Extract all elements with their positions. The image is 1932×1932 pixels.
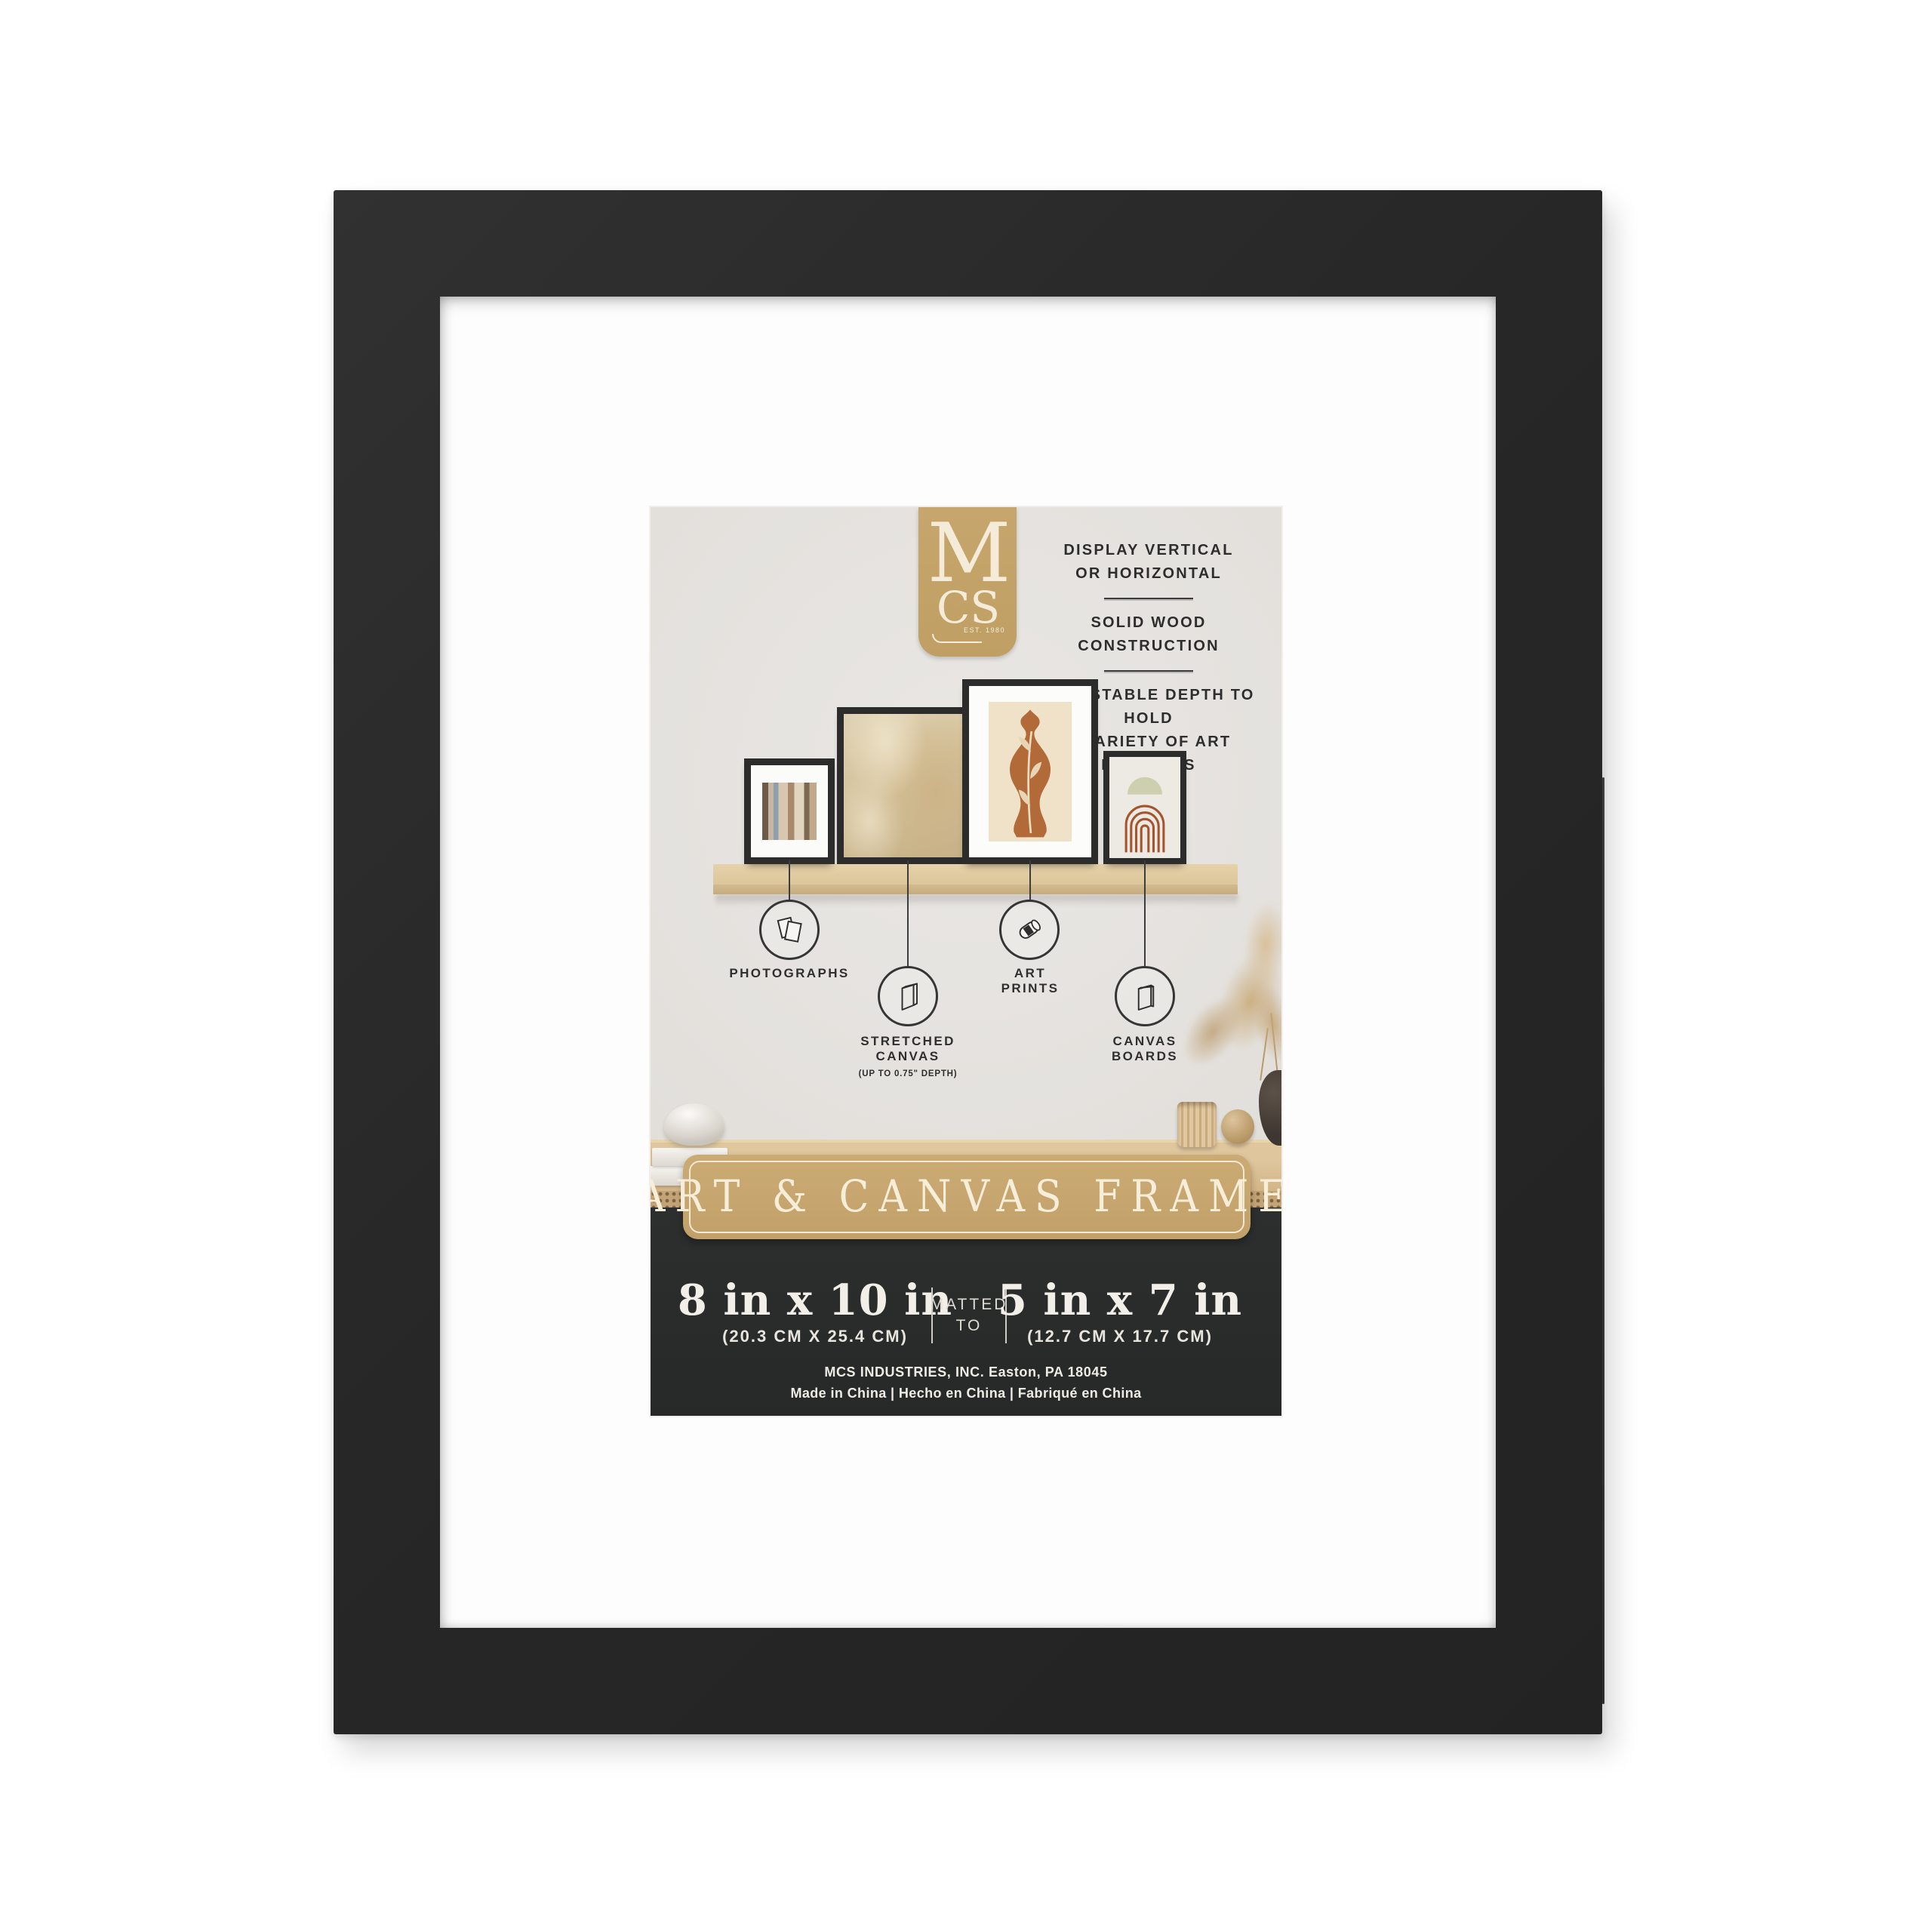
frame-mat: PHOTOGRAPHS ART PRINTS STRETCHED CANVAS …	[440, 297, 1496, 1628]
display-frame-arch	[1103, 751, 1186, 864]
country-of-origin: Made in China | Hecho en China | Fabriqu…	[651, 1386, 1281, 1401]
stretched-canvas-icon	[890, 978, 926, 1014]
display-frame-torso	[962, 679, 1098, 864]
outer-size-inches: 8 in x 10 in	[678, 1275, 952, 1325]
ledge-shelf	[713, 864, 1238, 884]
feature-display: DISPLAY VERTICAL OR HORIZONTAL	[1032, 539, 1266, 586]
arch-line-art	[1109, 757, 1180, 858]
torso-line-art	[989, 702, 1072, 841]
brand-logo-cs: CS	[937, 586, 1000, 629]
connector-line-1	[789, 860, 790, 901]
brand-tab: M CS EST. 1980	[918, 507, 1017, 657]
insert-card: PHOTOGRAPHS ART PRINTS STRETCHED CANVAS …	[651, 507, 1281, 1416]
mat-window: PHOTOGRAPHS ART PRINTS STRETCHED CANVAS …	[651, 507, 1281, 1416]
brand-est: EST. 1980	[964, 626, 1005, 634]
label-photographs: PHOTOGRAPHS	[714, 966, 865, 981]
banner-title: ART & CANVAS FRAME	[651, 1171, 1281, 1222]
media-circle-canvas-boards	[1115, 966, 1175, 1026]
torso-illustration	[992, 704, 1068, 840]
picture-frame: PHOTOGRAPHS ART PRINTS STRETCHED CANVAS …	[334, 190, 1602, 1734]
label-stretched-canvas: STRETCHED CANVAS (UP TO 0.75" DEPTH)	[832, 1034, 983, 1081]
white-bowl	[664, 1103, 724, 1146]
connector-line-2	[907, 860, 909, 966]
title-banner: ART & CANVAS FRAME	[683, 1155, 1251, 1239]
connector-line-3	[1029, 860, 1031, 901]
wooden-ball	[1221, 1109, 1254, 1144]
canvas-boards-icon	[1127, 978, 1163, 1014]
inner-size-inches: 5 in x 7 in	[998, 1275, 1242, 1325]
manufacturer-address: MCS INDUSTRIES, INC. Easton, PA 18045	[651, 1364, 1281, 1380]
media-circle-photographs	[759, 900, 820, 960]
product-photo: PHOTOGRAPHS ART PRINTS STRETCHED CANVAS …	[0, 0, 1932, 1932]
inner-size-cm: (12.7 CM X 17.7 CM)	[1027, 1327, 1213, 1346]
logo-swash	[932, 634, 982, 643]
matted-to: MATTED TO	[931, 1287, 1007, 1343]
feature-divider	[1104, 598, 1193, 599]
manufacturer-footer: MCS INDUSTRIES, INC. Easton, PA 18045 Ma…	[651, 1364, 1281, 1401]
photographs-icon	[771, 912, 808, 948]
feature-solid-wood: SOLID WOOD CONSTRUCTION	[1032, 611, 1266, 658]
connector-line-4	[1144, 860, 1146, 966]
media-circle-art-prints	[999, 900, 1060, 960]
art-prints-icon	[1011, 912, 1048, 948]
pampas-vase	[1259, 1070, 1281, 1146]
media-circle-stretched-canvas	[878, 966, 938, 1026]
display-frame-photo	[744, 758, 835, 864]
fluted-cup	[1177, 1102, 1217, 1147]
ledge-shelf-front	[713, 884, 1238, 894]
street-photo-art	[762, 783, 817, 840]
feature-divider	[1104, 670, 1193, 672]
abstract-texture-art	[844, 714, 972, 857]
arch-illustration	[1109, 757, 1180, 858]
label-art-prints: ART PRINTS	[955, 966, 1106, 996]
display-frame-abstract	[837, 707, 979, 864]
outer-size-cm: (20.3 CM X 25.4 CM)	[722, 1327, 908, 1346]
label-stretched-canvas-depth: (UP TO 0.75" DEPTH)	[832, 1066, 983, 1081]
